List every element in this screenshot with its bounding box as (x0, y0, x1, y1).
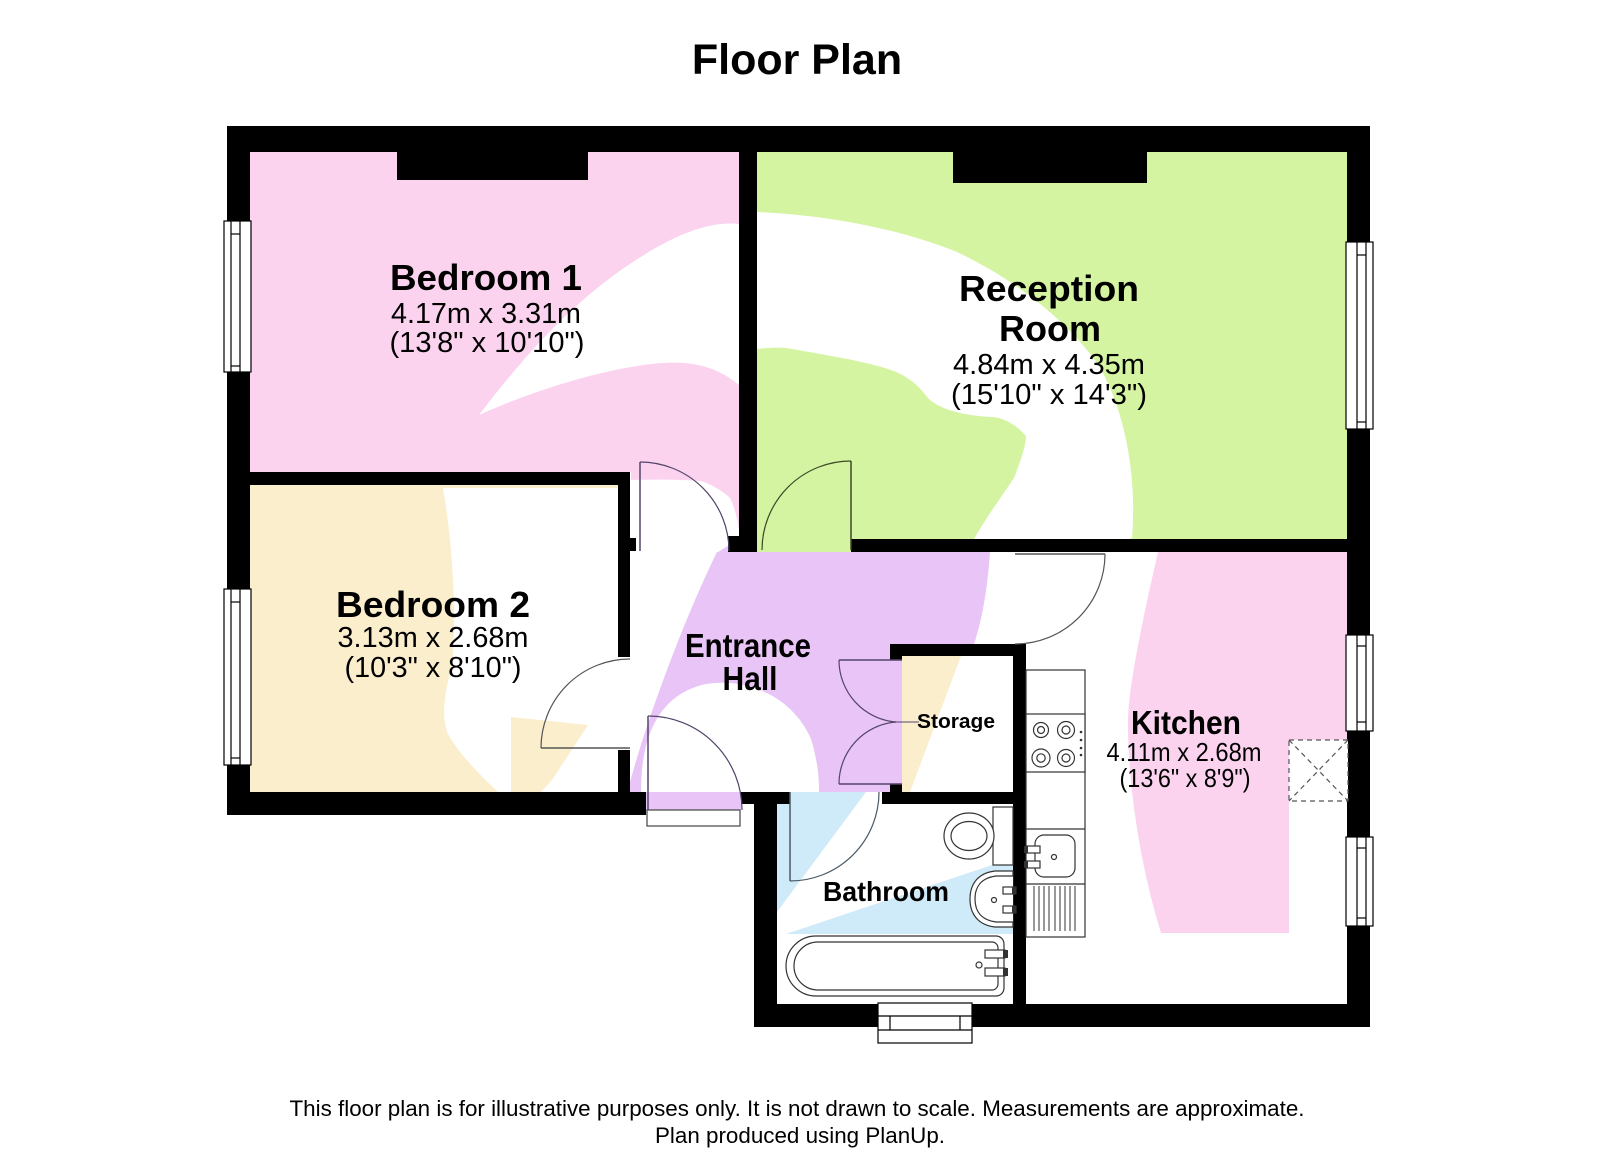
svg-text:Reception: Reception (959, 268, 1139, 309)
svg-text:4.84m x 4.35m: 4.84m x 4.35m (953, 349, 1145, 381)
svg-text:4.17m x 3.31m: 4.17m x 3.31m (391, 298, 581, 330)
svg-text:(10'3" x 8'10"): (10'3" x 8'10") (345, 652, 522, 684)
svg-text:Entrance: Entrance (685, 627, 811, 664)
svg-text:Plan produced using PlanUp.: Plan produced using PlanUp. (655, 1123, 945, 1148)
svg-text:Floor Plan: Floor Plan (692, 36, 902, 84)
svg-text:(15'10" x 14'3"): (15'10" x 14'3") (951, 379, 1147, 411)
svg-text:This floor plan is for illustr: This floor plan is for illustrative purp… (290, 1096, 1305, 1121)
svg-text:Storage: Storage (917, 711, 995, 733)
svg-text:3.13m x 2.68m: 3.13m x 2.68m (338, 622, 529, 654)
svg-text:Bedroom 1: Bedroom 1 (390, 257, 582, 298)
svg-text:Hall: Hall (723, 660, 778, 697)
svg-text:(13'6" x 8'9"): (13'6" x 8'9") (1120, 763, 1251, 793)
svg-text:Bedroom 2: Bedroom 2 (336, 584, 530, 625)
svg-text:Room: Room (999, 308, 1101, 349)
svg-text:(13'8" x 10'10"): (13'8" x 10'10") (390, 327, 585, 359)
svg-text:Kitchen: Kitchen (1131, 704, 1241, 741)
svg-text:Bathroom: Bathroom (823, 876, 949, 907)
